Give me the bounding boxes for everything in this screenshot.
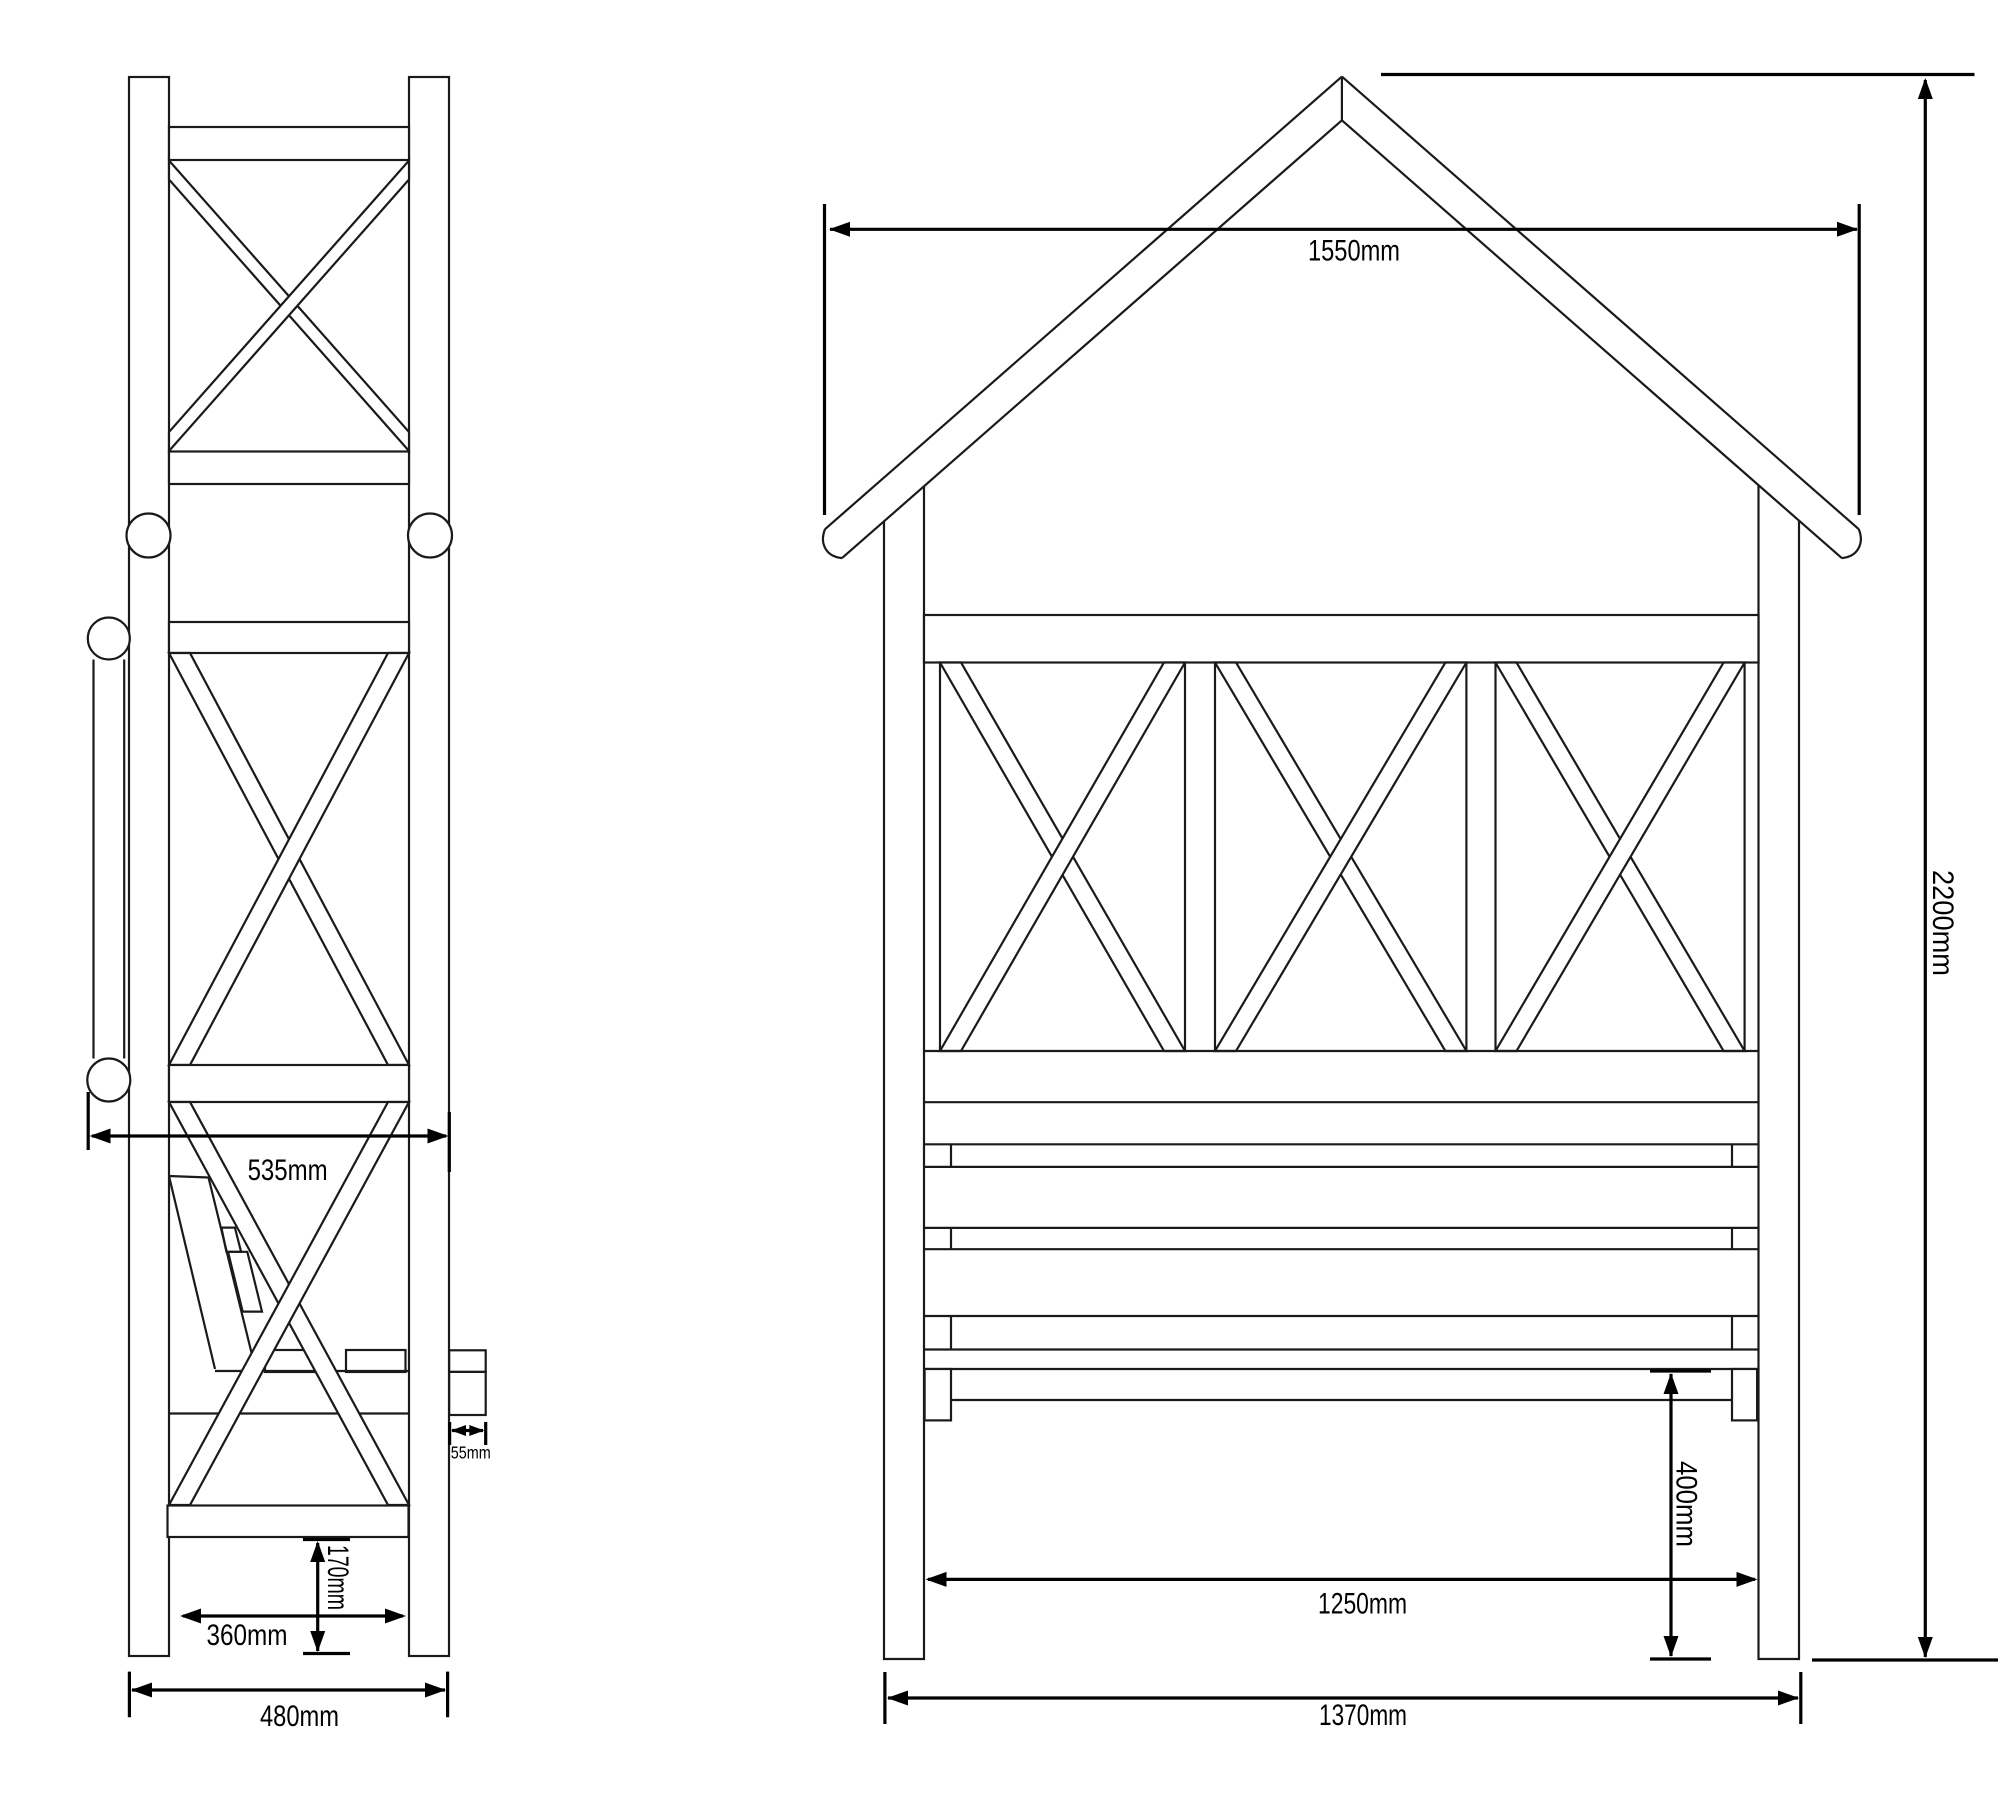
- svg-text:480mm: 480mm: [260, 1700, 339, 1733]
- svg-text:55mm: 55mm: [451, 1443, 491, 1463]
- svg-text:360mm: 360mm: [207, 1619, 288, 1652]
- svg-text:400mm: 400mm: [1670, 1461, 1703, 1547]
- svg-text:2200mm: 2200mm: [1926, 870, 1959, 976]
- svg-text:170mm: 170mm: [321, 1545, 354, 1610]
- svg-text:1550mm: 1550mm: [1308, 235, 1400, 268]
- svg-text:535mm: 535mm: [248, 1154, 328, 1187]
- svg-text:1370mm: 1370mm: [1319, 1699, 1407, 1732]
- svg-text:1250mm: 1250mm: [1318, 1588, 1407, 1621]
